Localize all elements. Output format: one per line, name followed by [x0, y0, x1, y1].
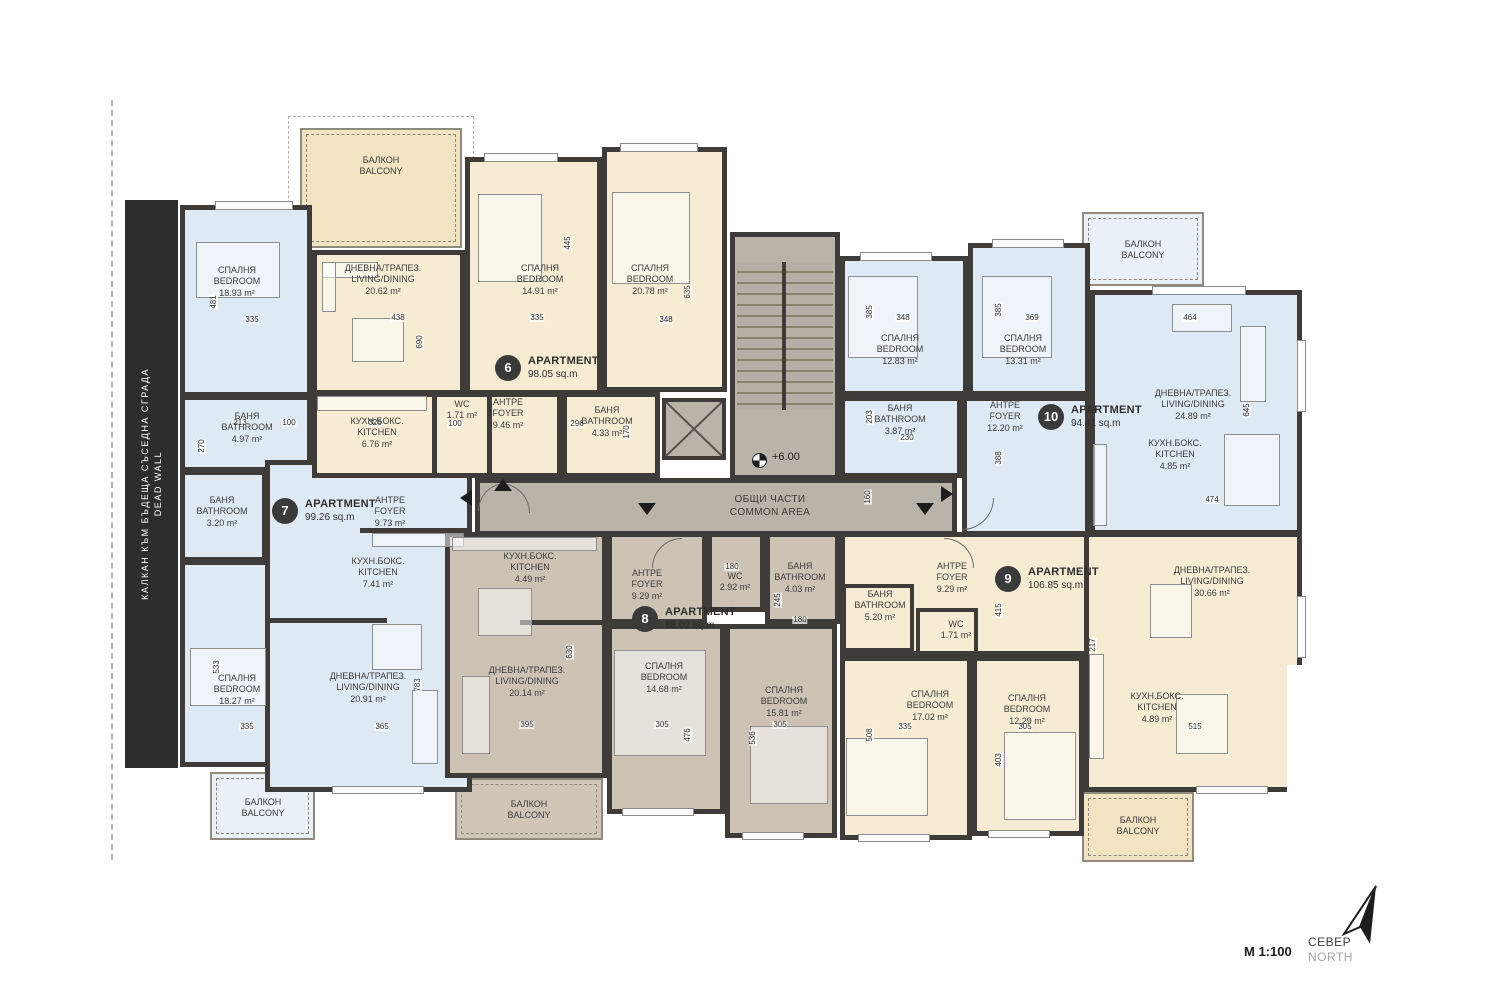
room-label-apt8-foyer: АНТРЕFOYER9.29 m² — [631, 568, 662, 602]
apartment-8-badge: 8APARTMENT88.02 sq.m — [632, 605, 736, 632]
room-label-apt7-kitchen: КУХН.БОКС.KITCHEN7.41 m² — [351, 556, 404, 590]
sofa-furniture — [322, 262, 336, 312]
dimension-label: 160 — [864, 489, 872, 504]
room-label-apt9-bathroom: БАНЯBATHROOM5.20 m² — [854, 589, 905, 623]
window — [620, 143, 698, 152]
dimension-label: 415 — [995, 602, 1003, 617]
window — [622, 808, 694, 816]
sofa-furniture — [1172, 304, 1232, 332]
elevator-x-icon — [666, 402, 722, 456]
apartment-9-info: APARTMENT106.85 sq.m — [1028, 565, 1099, 592]
window — [332, 786, 424, 794]
arrow-down-icon — [638, 503, 656, 515]
balcony-label: БАЛКОНBALCONY — [1121, 239, 1164, 262]
kitchen-counter-furniture — [1093, 444, 1107, 526]
dimension-label: 635 — [684, 284, 692, 299]
balcony-label: БАЛКОНBALCONY — [359, 155, 402, 178]
room-label-apt6-living: ДНЕВНА/ТРАПЕЗ.LIVING/DINING20.62 m² — [345, 263, 422, 297]
arrow-down-icon — [916, 503, 934, 515]
dining-table-furniture — [1224, 434, 1280, 506]
room-label-apt6-wc: WC1.71 m² — [447, 399, 478, 422]
dimension-label: 305 — [654, 721, 669, 729]
room-label-apt9-bedroom2: СПАЛНЯBEDROOM12.29 m² — [1004, 693, 1051, 727]
apartment-7-number: 7 — [272, 498, 298, 524]
dimension-label: 180 — [792, 616, 807, 624]
apartment-9-badge: 9APARTMENT106.85 sq.m — [995, 565, 1099, 592]
dimension-label: 385 — [995, 302, 1003, 317]
room-label-apt10-kitchen: КУХН.БОКС.KITCHEN4.85 m² — [1148, 438, 1201, 472]
room-label-apt9-kitchen: КУХН.БОКС.KITCHEN4.89 m² — [1130, 691, 1183, 725]
room-label-apt8-living: ДНЕВНА/ТРАПЕЗ.LIVING/DINING20.14 m² — [489, 665, 566, 699]
room-label-apt7-bedroom1: СПАЛНЯBEDROOM18.93 m² — [214, 265, 261, 299]
dimension-label: 508 — [866, 727, 874, 742]
dimension-label: 403 — [995, 752, 1003, 767]
room-label-apt8-bedroom1: СПАЛНЯBEDROOM14.68 m² — [641, 661, 688, 695]
dimension-label: 395 — [519, 721, 534, 729]
dimension-label: 348 — [658, 316, 673, 324]
corridor-common-area — [475, 478, 957, 536]
dead-wall-label-en: DEAD WALL — [153, 451, 163, 516]
dimension-label: 464 — [1182, 314, 1197, 322]
balcony-label: БАЛКОНBALCONY — [241, 797, 284, 820]
dimension-label: 203 — [866, 409, 874, 424]
room-label-apt8-bedroom2: СПАЛНЯBEDROOM15.81 m² — [761, 685, 808, 719]
room-label-apt9-bedroom1: СПАЛНЯBEDROOM17.02 m² — [907, 689, 954, 723]
dimension-label: 476 — [684, 727, 692, 742]
room-label-apt10-bathroom: БАНЯBATHROOM3.87 m² — [874, 403, 925, 437]
window — [860, 252, 932, 261]
dimension-label: 335 — [529, 314, 544, 322]
kitchen-counter-furniture — [452, 537, 597, 551]
bed-furniture — [1004, 732, 1076, 820]
sofa-furniture — [412, 690, 438, 764]
dimension-label: 536 — [749, 730, 757, 745]
room-label-apt6-bathroom: БАНЯBATHROOM4.33 m² — [581, 405, 632, 439]
dining-table-furniture — [352, 318, 404, 362]
window — [988, 830, 1050, 838]
balcony-label: БАЛКОНBALCONY — [1116, 815, 1159, 838]
dead-wall: КАЛКАН КЪМ БЪДЕЩА СЪСЕДНА СГРАДА DEAD WA… — [125, 200, 178, 768]
level-label: +6.00 — [772, 451, 800, 463]
property-dashed-line — [111, 100, 113, 860]
apartment-8-info: APARTMENT88.02 sq.m — [665, 605, 736, 632]
dimension-label: 335 — [897, 723, 912, 731]
balcony-apt6 — [300, 128, 462, 248]
window — [1152, 286, 1246, 295]
room-label-apt10-bedroom1: СПАЛНЯBEDROOM12.83 m² — [877, 333, 924, 367]
room-label-apt6-bedroom1: СПАЛНЯBEDROOM14.91 m² — [517, 263, 564, 297]
north-label-en: NORTH — [1308, 950, 1353, 964]
apartment-6-info: APARTMENT98.05 sq.m — [528, 354, 599, 381]
dimension-label: 270 — [198, 438, 206, 453]
dimension-label: 645 — [1243, 402, 1251, 417]
dead-wall-label-bg: КАЛКАН КЪМ БЪДЕЩА СЪСЕДНА СГРАДА — [140, 368, 150, 600]
dimension-label: 690 — [416, 334, 424, 349]
dining-table-furniture — [478, 588, 532, 636]
room-label-apt8-kitchen: КУХН.БОКС.KITCHEN4.49 m² — [503, 551, 556, 585]
dimension-label: 100 — [281, 419, 296, 427]
apartment-6-number: 6 — [495, 355, 521, 381]
elevator-shaft — [662, 398, 726, 460]
dimension-label: 348 — [895, 314, 910, 322]
apartment-10-badge: 10APARTMENT94.41 sq.m — [1038, 403, 1142, 430]
room-label-apt6-bedroom2: СПАЛНЯBEDROOM20.78 m² — [627, 263, 674, 297]
apartment-8-number: 8 — [632, 606, 658, 632]
dimension-label: 388 — [995, 450, 1003, 465]
dimension-label: 438 — [390, 314, 405, 322]
kitchen-counter-furniture — [317, 396, 427, 411]
room-label-apt10-foyer: АНТРЕFOYER12.20 m² — [987, 400, 1023, 434]
arrow-right-icon — [941, 486, 953, 502]
apartment-6-badge: 6APARTMENT98.05 sq.m — [495, 354, 599, 381]
room-label-apt7-living: ДНЕВНА/ТРАПЕЗ.LIVING/DINING20.91 m² — [330, 671, 407, 705]
room-label-apt6-foyer: АНТРЕFOYER9.46 m² — [492, 397, 523, 431]
room-label-apt7-bedroom2: СПАЛНЯBEDROOM18.27 m² — [214, 673, 261, 707]
window — [215, 201, 293, 210]
dimension-label: 630 — [566, 644, 574, 659]
dining-table-furniture — [372, 624, 422, 670]
common-area-label: ОБЩИ ЧАСТИCOMMON AREA — [730, 493, 811, 519]
arrow-up-icon — [494, 479, 512, 491]
room-label-apt6-kitchen: КУХН.БОКС.KITCHEN6.76 m² — [350, 416, 403, 450]
apartment-9-number: 9 — [995, 566, 1021, 592]
sofa-furniture — [1240, 326, 1266, 402]
window — [742, 832, 804, 840]
apt7-bedroom-1 — [180, 205, 312, 397]
dimension-label: 335 — [244, 316, 259, 324]
room-label-apt9-foyer: АНТРЕFOYER9.29 m² — [936, 561, 967, 595]
sofa-furniture — [462, 676, 490, 754]
apartment-10-info: APARTMENT94.41 sq.m — [1071, 403, 1142, 430]
floor-plan: КАЛКАН КЪМ БЪДЕЩА СЪСЕДНА СГРАДА DEAD WA… — [0, 0, 1500, 1008]
wall-apt8-kitchen-living — [520, 620, 607, 625]
window — [858, 834, 930, 842]
apt9-wall-notch — [1287, 665, 1302, 792]
apartment-7-info: APARTMENT99.26 sq.m — [305, 497, 376, 524]
wall-apt6-wc-foyer — [487, 394, 492, 476]
wall-apt6-kitchen-wc — [432, 394, 437, 476]
dimension-label: 385 — [866, 304, 874, 319]
dimension-label: 217 — [1089, 637, 1097, 652]
dimension-label: 445 — [564, 235, 572, 250]
room-label-apt7-foyer: АНТРЕFOYER9.73 m² — [374, 495, 405, 529]
window — [1297, 340, 1306, 412]
north-arrow-icon — [1336, 884, 1384, 946]
kitchen-counter-furniture — [372, 533, 464, 547]
room-label-apt8-wc: WC2.92 m² — [720, 571, 751, 594]
dimension-label: 305 — [772, 721, 787, 729]
room-label-apt10-living: ДНЕВНА/ТРАПЕЗ.LIVING/DINING24.89 m² — [1155, 388, 1232, 422]
window — [1297, 596, 1306, 658]
room-label-apt7-bathroom2: БАНЯBATHROOM3.20 m² — [196, 495, 247, 529]
window — [1196, 786, 1268, 794]
apartment-10-number: 10 — [1038, 404, 1064, 430]
dimension-label: 474 — [1204, 496, 1219, 504]
bed-furniture — [750, 726, 828, 804]
room-label-apt9-wc: WC1.71 m² — [941, 619, 972, 642]
dimension-label: 369 — [1024, 314, 1039, 322]
room-label-apt7-bathroom1: БАНЯBATHROOM4.97 m² — [221, 411, 272, 445]
room-label-apt8-bathroom: БАНЯBATHROOM4.03 m² — [774, 561, 825, 595]
arrow-left-icon — [460, 490, 472, 506]
wall-apt7-kitchen-living — [267, 618, 387, 623]
stairs-divider — [782, 262, 786, 410]
room-label-apt9-living: ДНЕВНА/ТРАПЕЗ.LIVING/DINING30.66 m² — [1174, 565, 1251, 599]
scale-label: М 1:100 — [1244, 944, 1292, 959]
dimension-label: 515 — [1187, 723, 1202, 731]
balcony-label: БАЛКОНBALCONY — [507, 799, 550, 822]
room-label-apt10-bedroom2: СПАЛНЯBEDROOM13.31 m² — [1000, 333, 1047, 367]
level-marker-icon — [752, 453, 767, 468]
window — [484, 153, 558, 162]
dimension-label: 783 — [414, 677, 422, 692]
apartment-7-badge: 7APARTMENT99.26 sq.m — [272, 497, 376, 524]
window — [992, 239, 1064, 248]
dimension-label: 335 — [239, 723, 254, 731]
bed-furniture — [846, 738, 928, 816]
kitchen-counter-furniture — [1089, 654, 1104, 759]
dimension-label: 365 — [374, 723, 389, 731]
